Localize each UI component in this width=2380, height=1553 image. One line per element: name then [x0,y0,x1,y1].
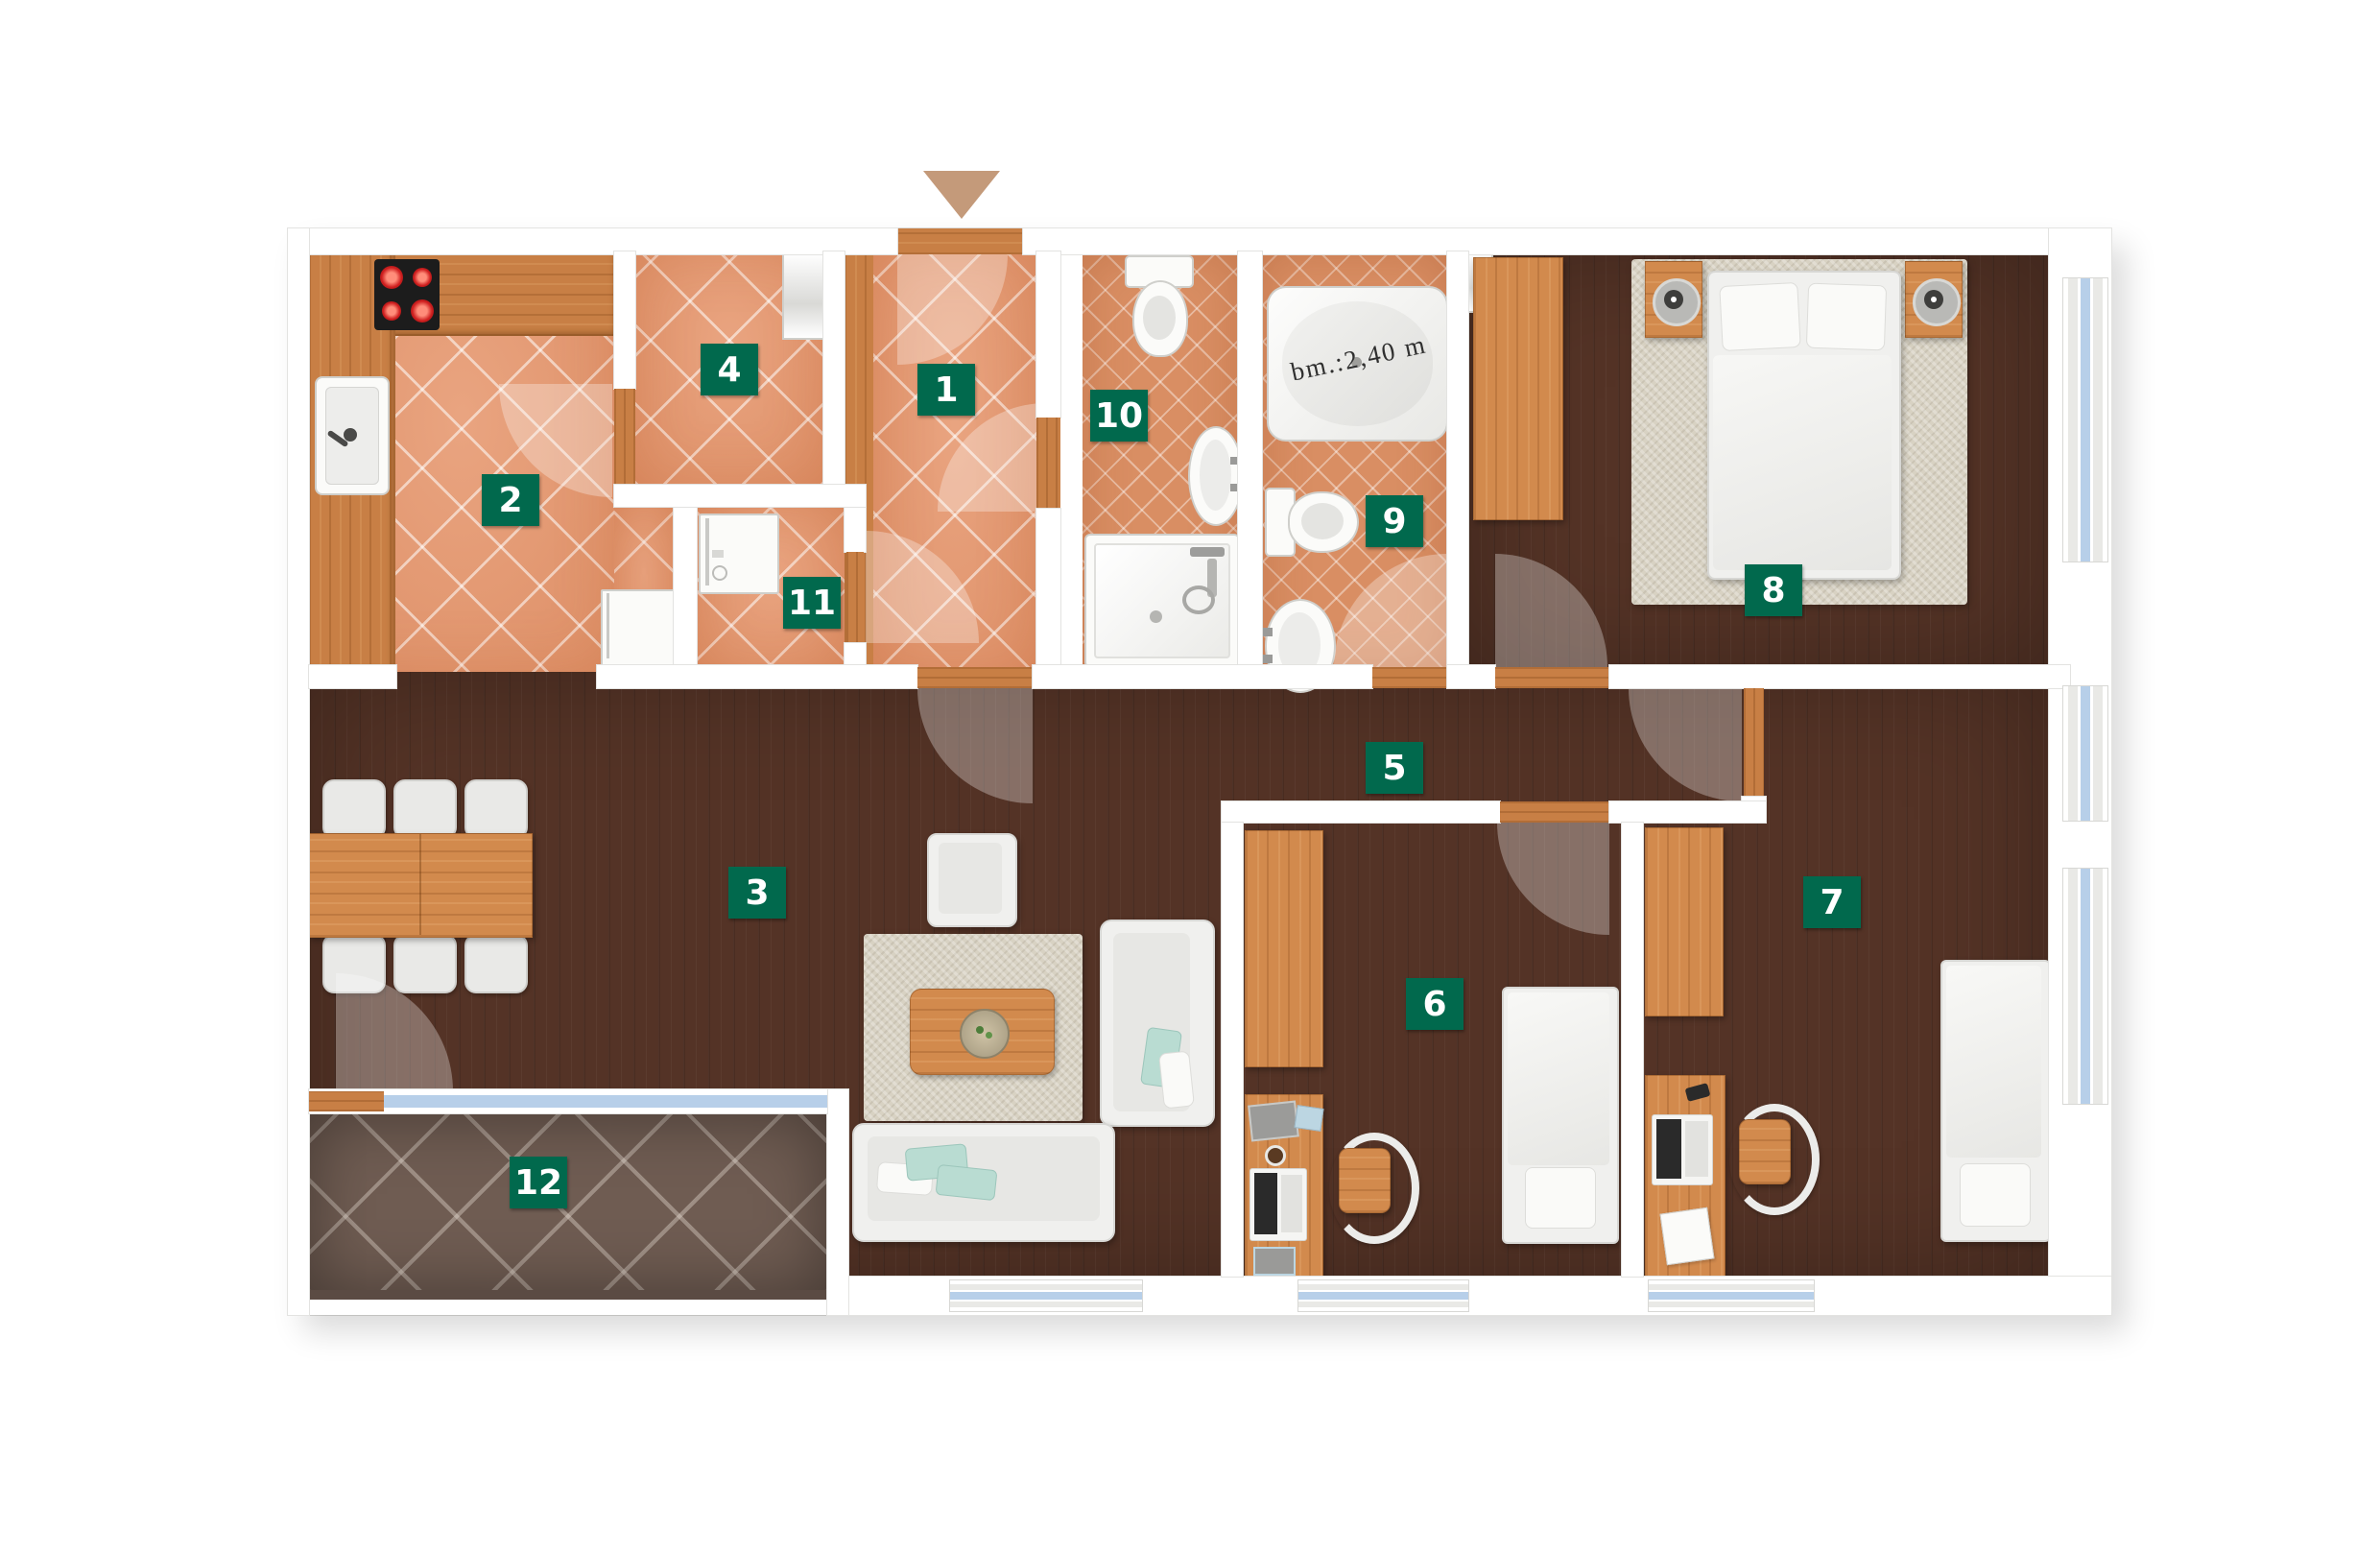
window [2063,278,2107,561]
desk [1245,1094,1323,1278]
sofa-pillow [1158,1050,1195,1109]
door-threshold [1036,418,1060,509]
entrance-arrow-icon [923,171,1000,219]
wall-segment [1222,823,1243,1277]
wall-segment [614,485,866,507]
shower-tray [1084,534,1240,668]
room-label-6: 6 [1406,978,1464,1030]
duvet [1946,966,2041,1158]
box-icon [1253,1247,1296,1276]
burner-icon [411,299,434,323]
door-threshold [1500,801,1609,823]
armchair [927,833,1017,927]
window [2063,869,2107,1104]
room-label-2: 2 [482,474,539,526]
duvet [1508,992,1609,1165]
double-bed [1707,271,1901,580]
book-icon [1294,1105,1323,1132]
room-label-10: 10 [1090,390,1148,442]
room-label-3: 3 [728,867,786,919]
window [1649,1280,1814,1311]
room-label-8: 8 [1745,564,1802,616]
laptop-icon [1652,1114,1713,1185]
wardrobe [1473,257,1563,520]
wall-segment [845,507,866,552]
single-bed [1502,987,1619,1244]
nightstand [1905,261,1963,338]
chair-seat [1339,1148,1391,1213]
burner-icon [413,268,432,287]
single-bed [1940,960,2051,1242]
notebook-icon [1659,1207,1714,1265]
monitor-icon [1248,1100,1299,1141]
sofa-pillow [935,1164,997,1201]
door-threshold [1495,667,1609,688]
chair-seat [1739,1119,1791,1184]
dining-table [309,833,533,938]
door-leaf [846,552,864,643]
wall-segment [1622,823,1643,1277]
desk [1645,1075,1725,1278]
fridge [601,589,676,666]
room-label-9: 9 [1366,495,1423,547]
wall-segment [1447,251,1468,672]
dining-chair [322,779,386,839]
toilet-bowl-icon [1288,491,1359,553]
window [2063,686,2107,821]
toilet-bowl-icon [1132,280,1188,357]
wall-segment [1036,509,1060,672]
balcony-glass-wall [384,1095,827,1108]
door-threshold [1744,688,1764,797]
bathtub: bm.:2,40 m [1267,286,1448,442]
desk-chair [1329,1133,1419,1244]
sofa [1100,920,1215,1127]
lamp-dot [1671,297,1677,302]
wall-segment [1609,801,1766,823]
kitchen-sink [315,376,390,495]
cup-icon [1265,1145,1286,1166]
washbasin-icon [1188,426,1244,526]
bowl-icon [960,1009,1010,1059]
laptop-icon [1249,1168,1307,1241]
wall-segment [288,228,309,1315]
wall-segment [1023,228,2111,254]
floor-plan-page: { "rooms": [ {"number": "1"}, {"number":… [0,0,2380,1553]
entrance-threshold [897,228,1023,254]
wall-segment [614,251,635,389]
balcony-door-threshold [309,1091,384,1111]
dining-chair [464,779,528,839]
phone-icon [1685,1083,1711,1102]
lamp-dot [1931,297,1937,302]
wardrobe [1245,830,1323,1067]
dining-chair [464,934,528,993]
room-label-5: 5 [1366,742,1423,794]
wall-segment [823,251,845,485]
pillow [1806,283,1887,351]
nightstand [1645,261,1702,338]
wall-segment [1033,665,1372,688]
room-label-11: 11 [783,577,841,629]
pillow [1525,1167,1596,1229]
door-threshold [1372,667,1447,688]
room-label-1: 1 [917,364,975,416]
washing-machine-icon [699,514,779,594]
pillow [1960,1163,2031,1227]
wall-segment [1238,251,1262,672]
wall-segment [288,228,897,254]
wall-segment [827,1089,848,1315]
dining-chair [393,934,457,993]
pillow [1719,282,1800,351]
installation-shaft [782,251,827,340]
door-threshold [614,389,635,485]
duvet [1713,355,1892,570]
wall-segment [1036,251,1060,418]
dining-chair [393,779,457,839]
door-threshold [917,667,1033,688]
wall-segment [1222,801,1500,823]
desk-chair [1729,1104,1820,1215]
sofa [852,1123,1115,1242]
stove-icon [374,259,440,330]
wardrobe [1645,827,1724,1016]
balcony-edge [309,1290,827,1300]
wall-segment [1447,665,1495,688]
room-label-12: 12 [510,1157,567,1208]
burner-icon [380,266,403,289]
wall-segment [597,665,917,688]
room-label-4: 4 [701,344,758,395]
balcony-floor [309,1113,827,1294]
window [1298,1280,1468,1311]
coffee-table [910,989,1055,1075]
wall-segment [309,665,396,688]
burner-icon [382,301,401,321]
wall-segment [1609,665,2070,688]
room-label-7: 7 [1803,876,1861,928]
wall-segment [674,507,697,672]
window [950,1280,1142,1311]
